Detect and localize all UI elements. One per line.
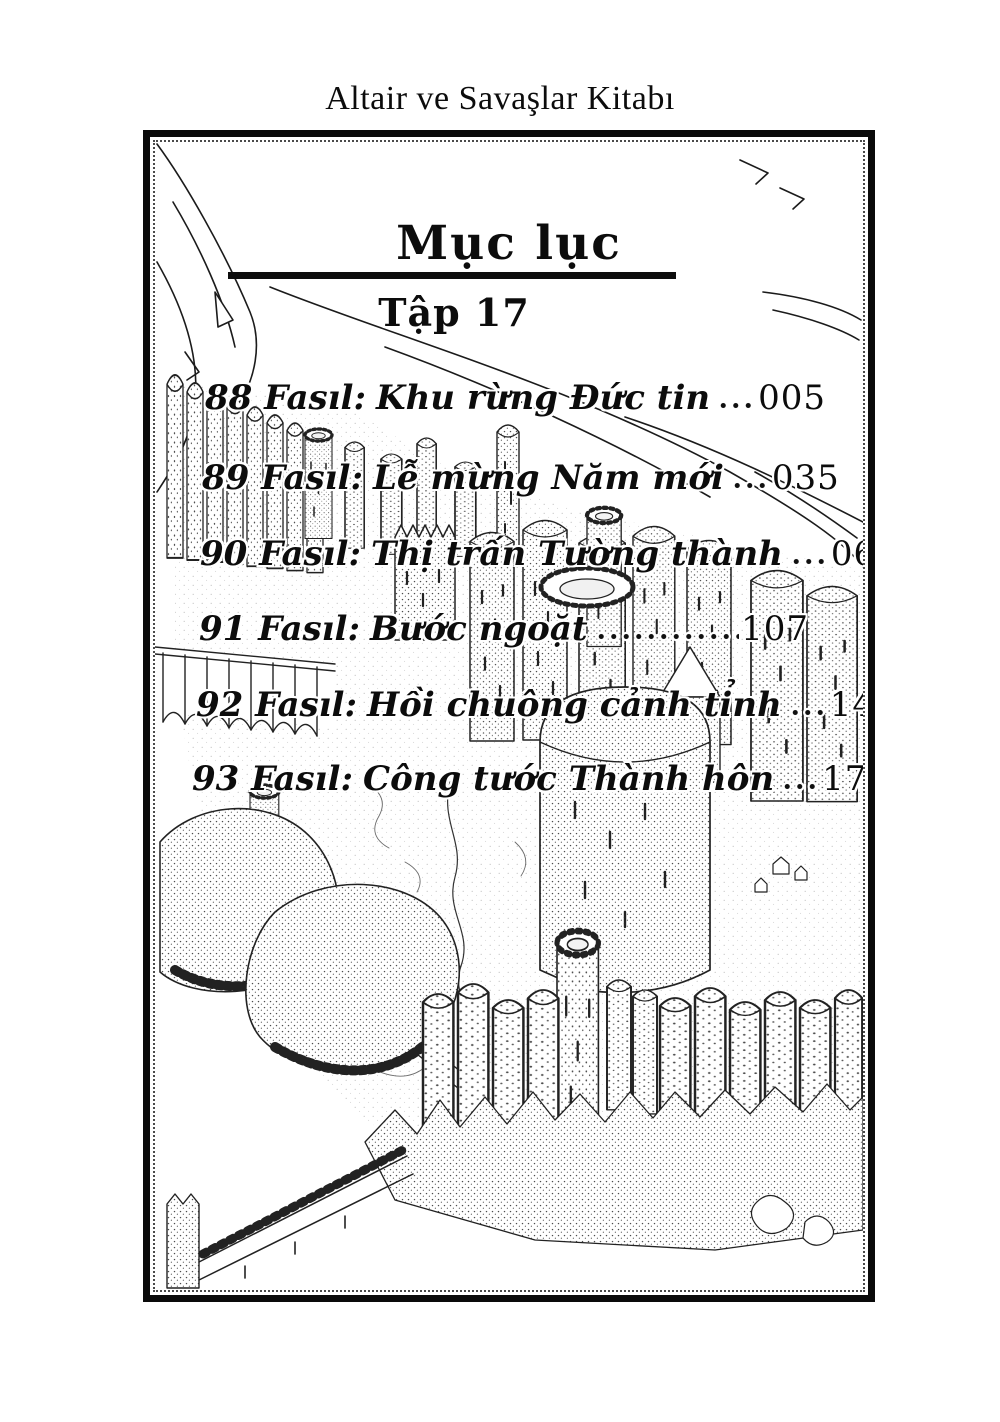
page-number: 107 (741, 609, 809, 649)
toc-volume: Tập 17 (155, 290, 753, 335)
chapter-number: 92 Fasıl: (196, 685, 357, 725)
manga-toc-page: Altair ve Savaşlar Kitabı (0, 0, 1000, 1422)
toc-entry-88: 88 Fasıl: Khu rừng Đức tin 005 (205, 372, 809, 418)
page-number: 147 (830, 685, 865, 725)
dot-leader (780, 780, 820, 793)
toc-entry-93: 93 Fasıl: Công tước Thành hôn 171 (192, 753, 809, 799)
illustration-frame-inner: Mục lục Tập 17 88 Fasıl: Khu rừng Đức ti… (153, 140, 865, 1292)
divider-rule (228, 272, 676, 279)
table-of-contents: Mục lục Tập 17 88 Fasıl: Khu rừng Đức ti… (155, 142, 863, 1290)
chapter-number: 90 Fasıl: (200, 534, 361, 574)
chapter-title: Bước ngoặt (370, 609, 588, 649)
page-title: Altair ve Savaşlar Kitabı (0, 80, 1000, 118)
chapter-title: Công tước Thành hôn (363, 759, 774, 799)
illustration-frame: Mục lục Tập 17 88 Fasıl: Khu rừng Đức ti… (143, 130, 875, 1302)
toc-title: Mục lục (155, 216, 863, 271)
page-number: 035 (772, 458, 840, 498)
toc-entry-90: 90 Fasıl: Thị trấn Tường thành 069 (200, 528, 809, 574)
chapter-number: 89 Fasıl: (202, 458, 363, 498)
chapter-title: Hồi chuông cảnh tỉnh (367, 685, 782, 725)
toc-entry-91: 91 Fasıl: Bước ngoặt 107 (199, 603, 809, 649)
chapter-number: 93 Fasıl: (192, 759, 353, 799)
page-number: 005 (758, 378, 826, 418)
toc-entry-89: 89 Fasıl: Lễ mừng Năm mới 035 (202, 452, 809, 498)
dot-leader (788, 706, 828, 719)
page-number: 171 (822, 759, 865, 799)
dot-leader (594, 630, 739, 643)
dot-leader (789, 555, 829, 568)
page-number: 069 (831, 534, 865, 574)
chapter-title: Thị trấn Tường thành (371, 534, 783, 574)
chapter-title: Lễ mừng Năm mới (373, 458, 724, 498)
dot-leader (716, 399, 756, 412)
chapter-number: 88 Fasıl: (205, 378, 366, 418)
toc-entry-92: 92 Fasıl: Hồi chuông cảnh tỉnh 147 (196, 679, 809, 725)
chapter-number: 91 Fasıl: (199, 609, 360, 649)
dot-leader (730, 479, 770, 492)
chapter-title: Khu rừng Đức tin (376, 378, 710, 418)
